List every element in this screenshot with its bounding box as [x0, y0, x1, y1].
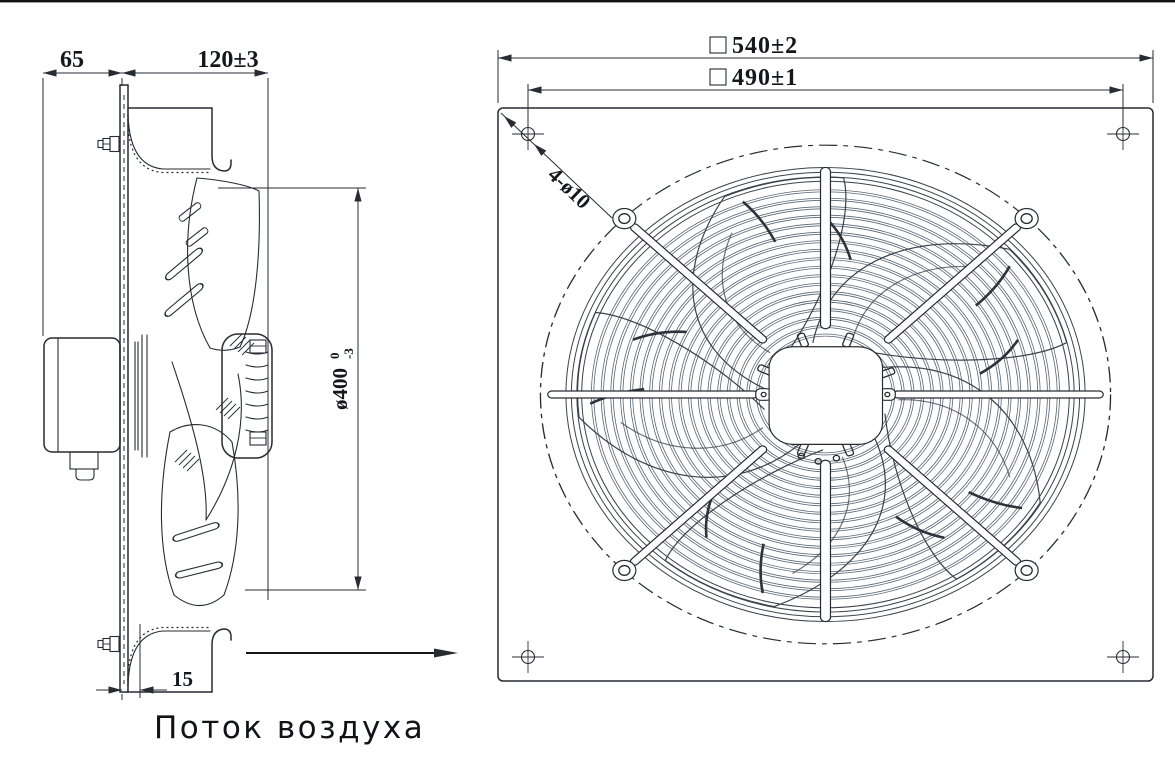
dimension-flange-depth: 65 120±3 — [43, 47, 268, 600]
bolt-top — [98, 137, 119, 152]
dim-490-label: 490±1 — [732, 65, 798, 91]
dim-120-label: 120±3 — [197, 47, 258, 73]
sheet-top-border — [0, 0, 1175, 2]
square-symbol — [710, 69, 726, 85]
motor — [44, 338, 120, 480]
corner-hole-bottom-right — [1107, 641, 1139, 673]
dim-400-lower-tol: -3 — [341, 348, 356, 359]
hub-bolt-bottom — [250, 432, 266, 445]
airflow-label: Поток воздуха — [154, 710, 425, 746]
dim-400-upper-tol: 0 — [327, 353, 342, 360]
square-symbol — [710, 37, 726, 53]
drawing-sheet: 65 120±3 — [0, 0, 1175, 783]
dim-65-label: 65 — [60, 47, 84, 73]
corner-hole-bottom-left — [512, 641, 544, 673]
hub-plate — [769, 347, 882, 445]
cable-gland — [76, 469, 94, 480]
mounting-plate-side — [120, 85, 128, 692]
dim-15-label: 15 — [172, 667, 193, 691]
dimension-plate-offset: 15 — [96, 624, 193, 700]
hub-flange — [135, 335, 147, 457]
fan-assembly-front — [528, 135, 1111, 644]
hub-cover — [756, 333, 896, 465]
dimension-plate-size: 540±2 — [498, 33, 1153, 103]
side-view: 65 120±3 — [43, 47, 458, 700]
bolt-bottom — [98, 637, 119, 652]
mount-holes-label: 4-ø10 — [543, 162, 595, 213]
mount-holes-callout: 4-ø10 — [501, 113, 612, 218]
dim-540-label: 540±2 — [732, 33, 798, 59]
inlet-bell-top — [128, 108, 231, 173]
terminal-box — [70, 452, 98, 469]
dimension-hole-pitch: 490±1 — [528, 65, 1123, 130]
airflow-arrow — [246, 649, 458, 658]
impeller-blades-side — [161, 178, 259, 606]
dim-400-label: ø400 — [328, 368, 352, 410]
engineering-drawing: 65 120±3 — [0, 0, 1175, 783]
front-view: 540±2 490±1 4-ø10 — [498, 33, 1153, 681]
hub-bolt-top — [250, 340, 266, 353]
